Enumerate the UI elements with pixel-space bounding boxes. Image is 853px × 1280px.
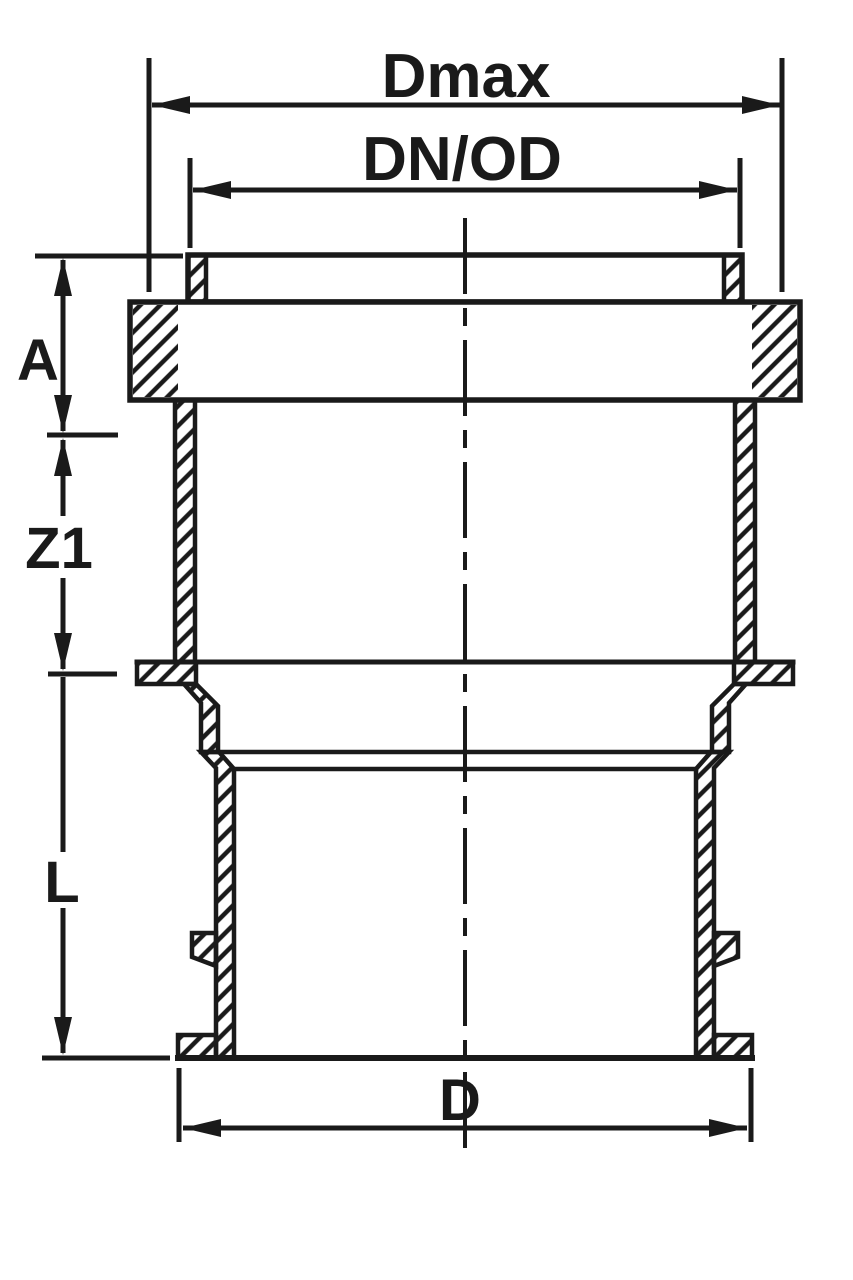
cone-transition-right (712, 684, 746, 752)
dimensions: Dmax DN/OD A Z1 (17, 42, 782, 1142)
dim-label-a: A (17, 328, 59, 393)
spigot-foot-right (714, 1035, 752, 1058)
arrowhead-right-icon (699, 181, 737, 199)
socket-wall-left (175, 400, 195, 662)
dim-label-l: L (44, 850, 79, 915)
dim-label-d: D (439, 1068, 481, 1133)
dimension-d: D (179, 1068, 751, 1142)
arrowhead-left-icon (183, 1119, 221, 1137)
dim-label-z1: Z1 (25, 516, 93, 581)
collar-bead-left (137, 662, 196, 684)
arrowhead-left-icon (193, 181, 231, 199)
socket-wall-right (735, 400, 755, 662)
lip-wall-right-hatch (724, 255, 742, 302)
collar-bead-right (734, 662, 793, 684)
dimension-z1: Z1 (25, 438, 93, 671)
arrowhead-right-icon (742, 96, 780, 114)
cone-transition-left (184, 684, 218, 752)
spigot-rib-left (192, 933, 216, 966)
dimension-a: A (17, 258, 72, 433)
arrowhead-up-icon (54, 258, 72, 296)
dim-label-dn-od: DN/OD (362, 125, 562, 194)
dimension-l: L (44, 677, 79, 1055)
spigot-foot-left (178, 1035, 216, 1058)
arrowhead-left-icon (152, 96, 190, 114)
spigot-rib-right (714, 933, 738, 966)
flange-hatch-left (133, 305, 178, 397)
lip-wall-left-hatch (188, 255, 206, 302)
arrowhead-right-icon (709, 1119, 747, 1137)
flange-hatch-right (752, 305, 797, 397)
arrowhead-down-icon (54, 633, 72, 671)
spigot-wall-left (201, 752, 234, 1058)
fitting-section-drawing: Dmax DN/OD A Z1 (0, 0, 853, 1280)
drawing-canvas: Dmax DN/OD A Z1 (0, 0, 853, 1280)
arrowhead-up-icon (54, 438, 72, 476)
arrowhead-down-icon (54, 395, 72, 433)
spigot-wall-right (696, 752, 729, 1058)
arrowhead-down-icon (54, 1017, 72, 1055)
dim-label-dmax: Dmax (382, 42, 551, 111)
fitting-body (130, 220, 800, 1160)
